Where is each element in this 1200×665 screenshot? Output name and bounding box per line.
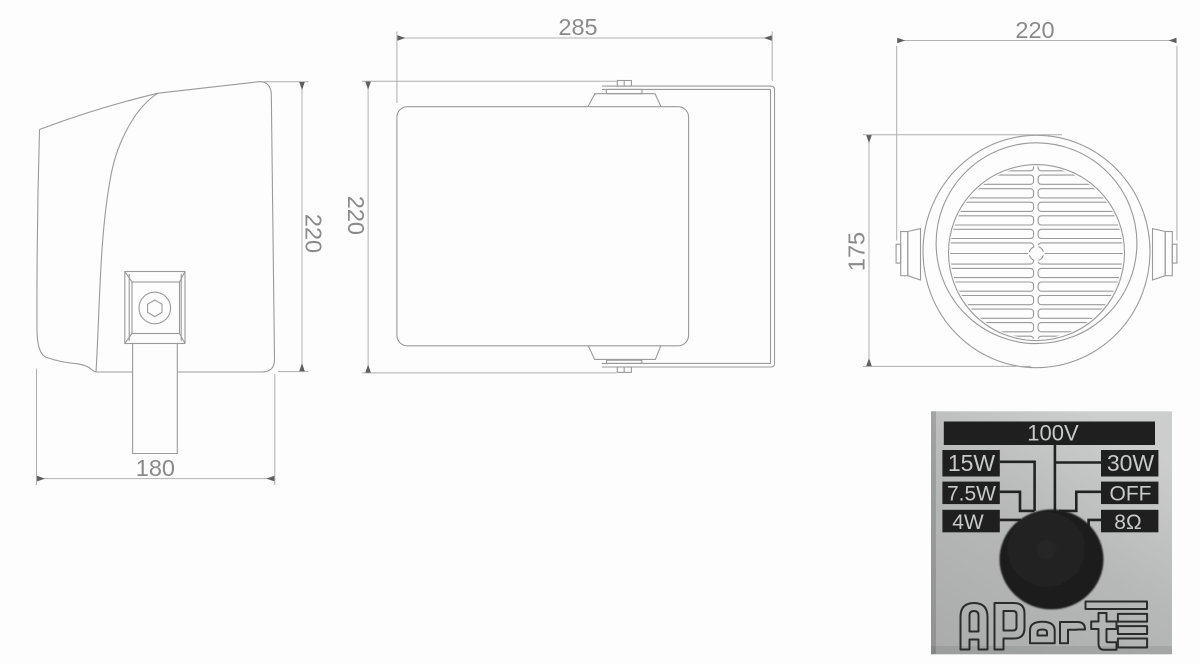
svg-text:285: 285 <box>558 14 597 40</box>
svg-text:OFF: OFF <box>1110 483 1152 506</box>
svg-text:175: 175 <box>844 232 870 271</box>
svg-text:30W: 30W <box>1107 450 1155 476</box>
svg-text:8Ω: 8Ω <box>1114 511 1141 534</box>
svg-text:220: 220 <box>343 196 369 235</box>
svg-text:220: 220 <box>1015 17 1054 43</box>
svg-text:180: 180 <box>136 455 175 481</box>
svg-text:220: 220 <box>300 214 326 253</box>
svg-text:7.5W: 7.5W <box>947 483 996 506</box>
svg-text:100V: 100V <box>1027 421 1079 446</box>
svg-text:4W: 4W <box>952 511 984 534</box>
svg-text:15W: 15W <box>948 450 996 476</box>
